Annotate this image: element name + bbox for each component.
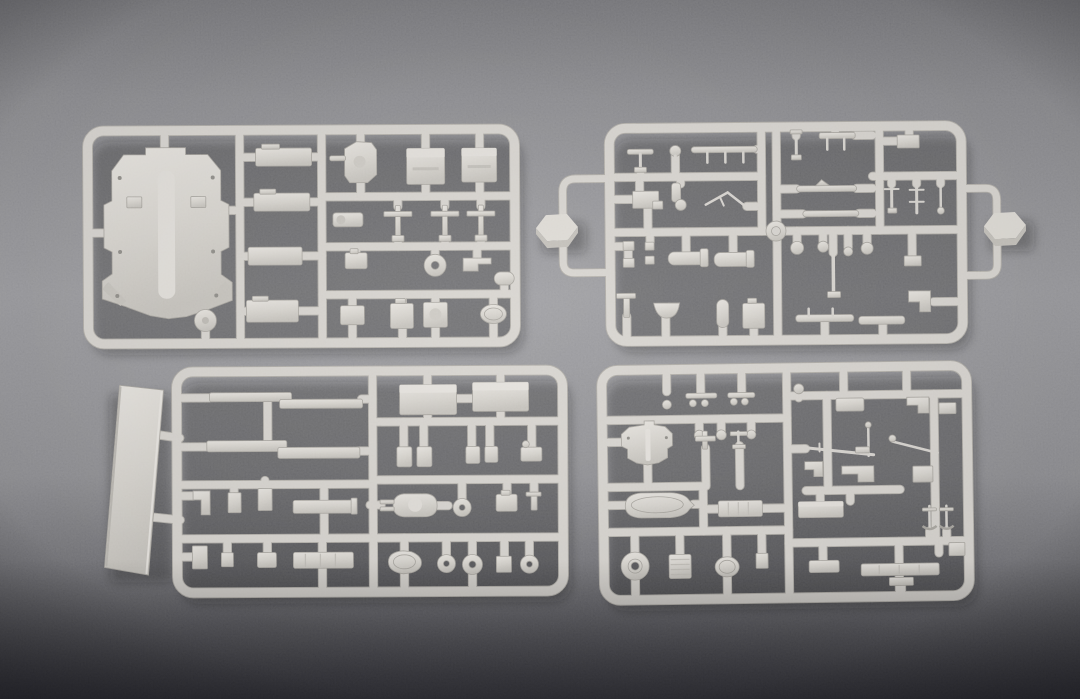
photo-canvas <box>0 0 1080 699</box>
screenshot-root <box>0 0 1080 699</box>
vignette-layer <box>0 0 1080 699</box>
bottom-shadow <box>0 0 1080 699</box>
